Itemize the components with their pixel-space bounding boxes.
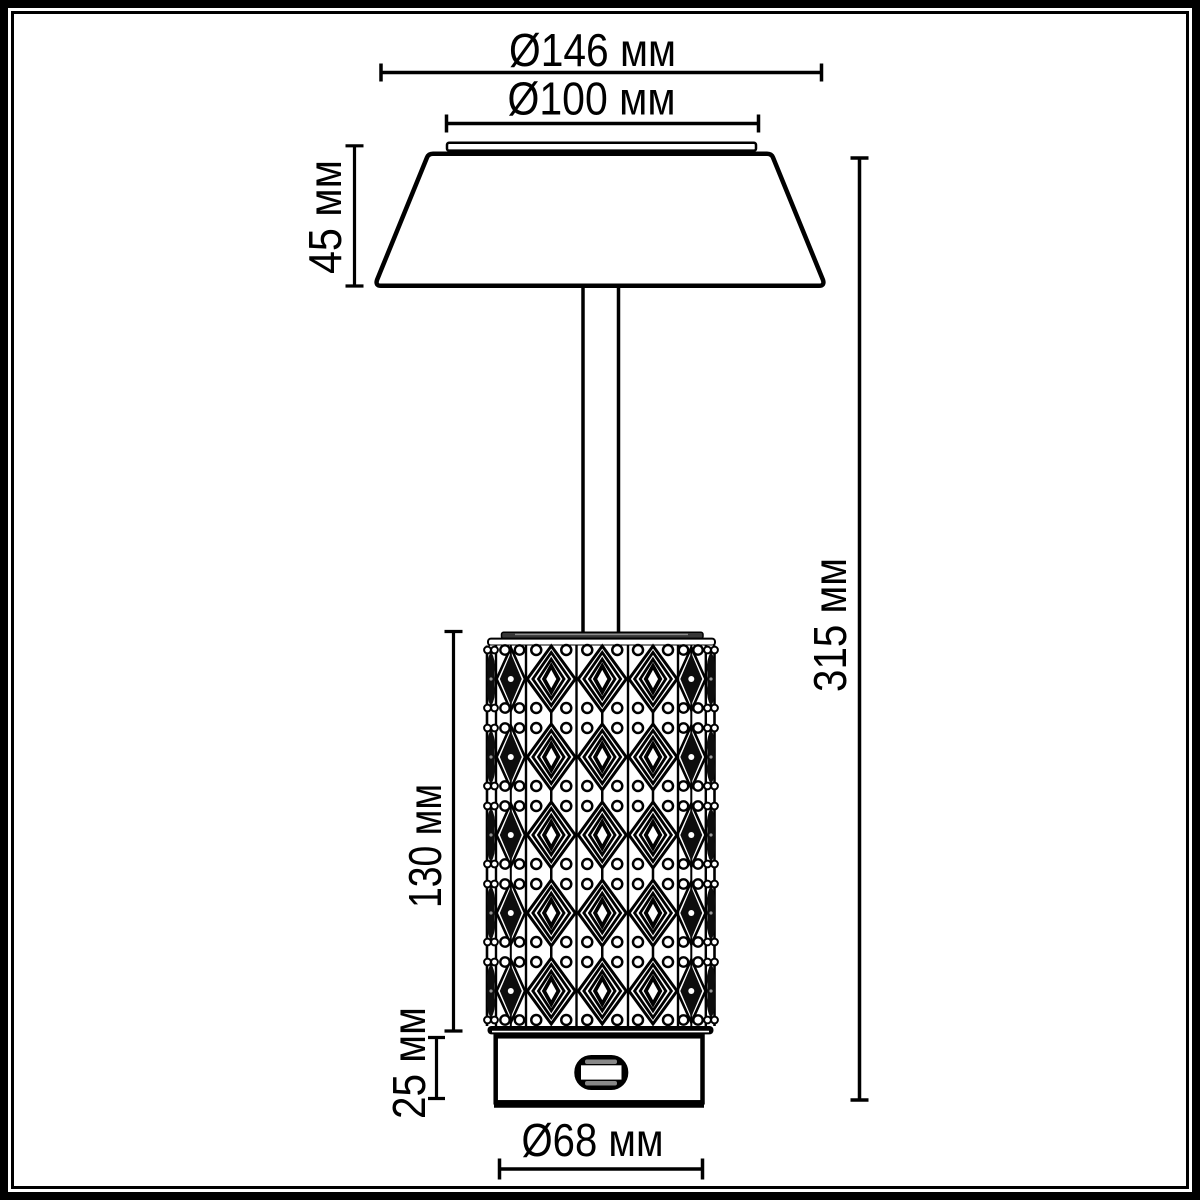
svg-text:Ø68 мм: Ø68 мм <box>522 1114 664 1166</box>
svg-text:Ø146 мм: Ø146 мм <box>509 24 676 76</box>
svg-text:25 мм: 25 мм <box>383 1007 435 1119</box>
svg-text:130 мм: 130 мм <box>399 784 451 908</box>
svg-text:Ø100 мм: Ø100 мм <box>508 73 676 125</box>
svg-text:45 мм: 45 мм <box>299 160 351 274</box>
svg-text:315 мм: 315 мм <box>804 558 856 692</box>
